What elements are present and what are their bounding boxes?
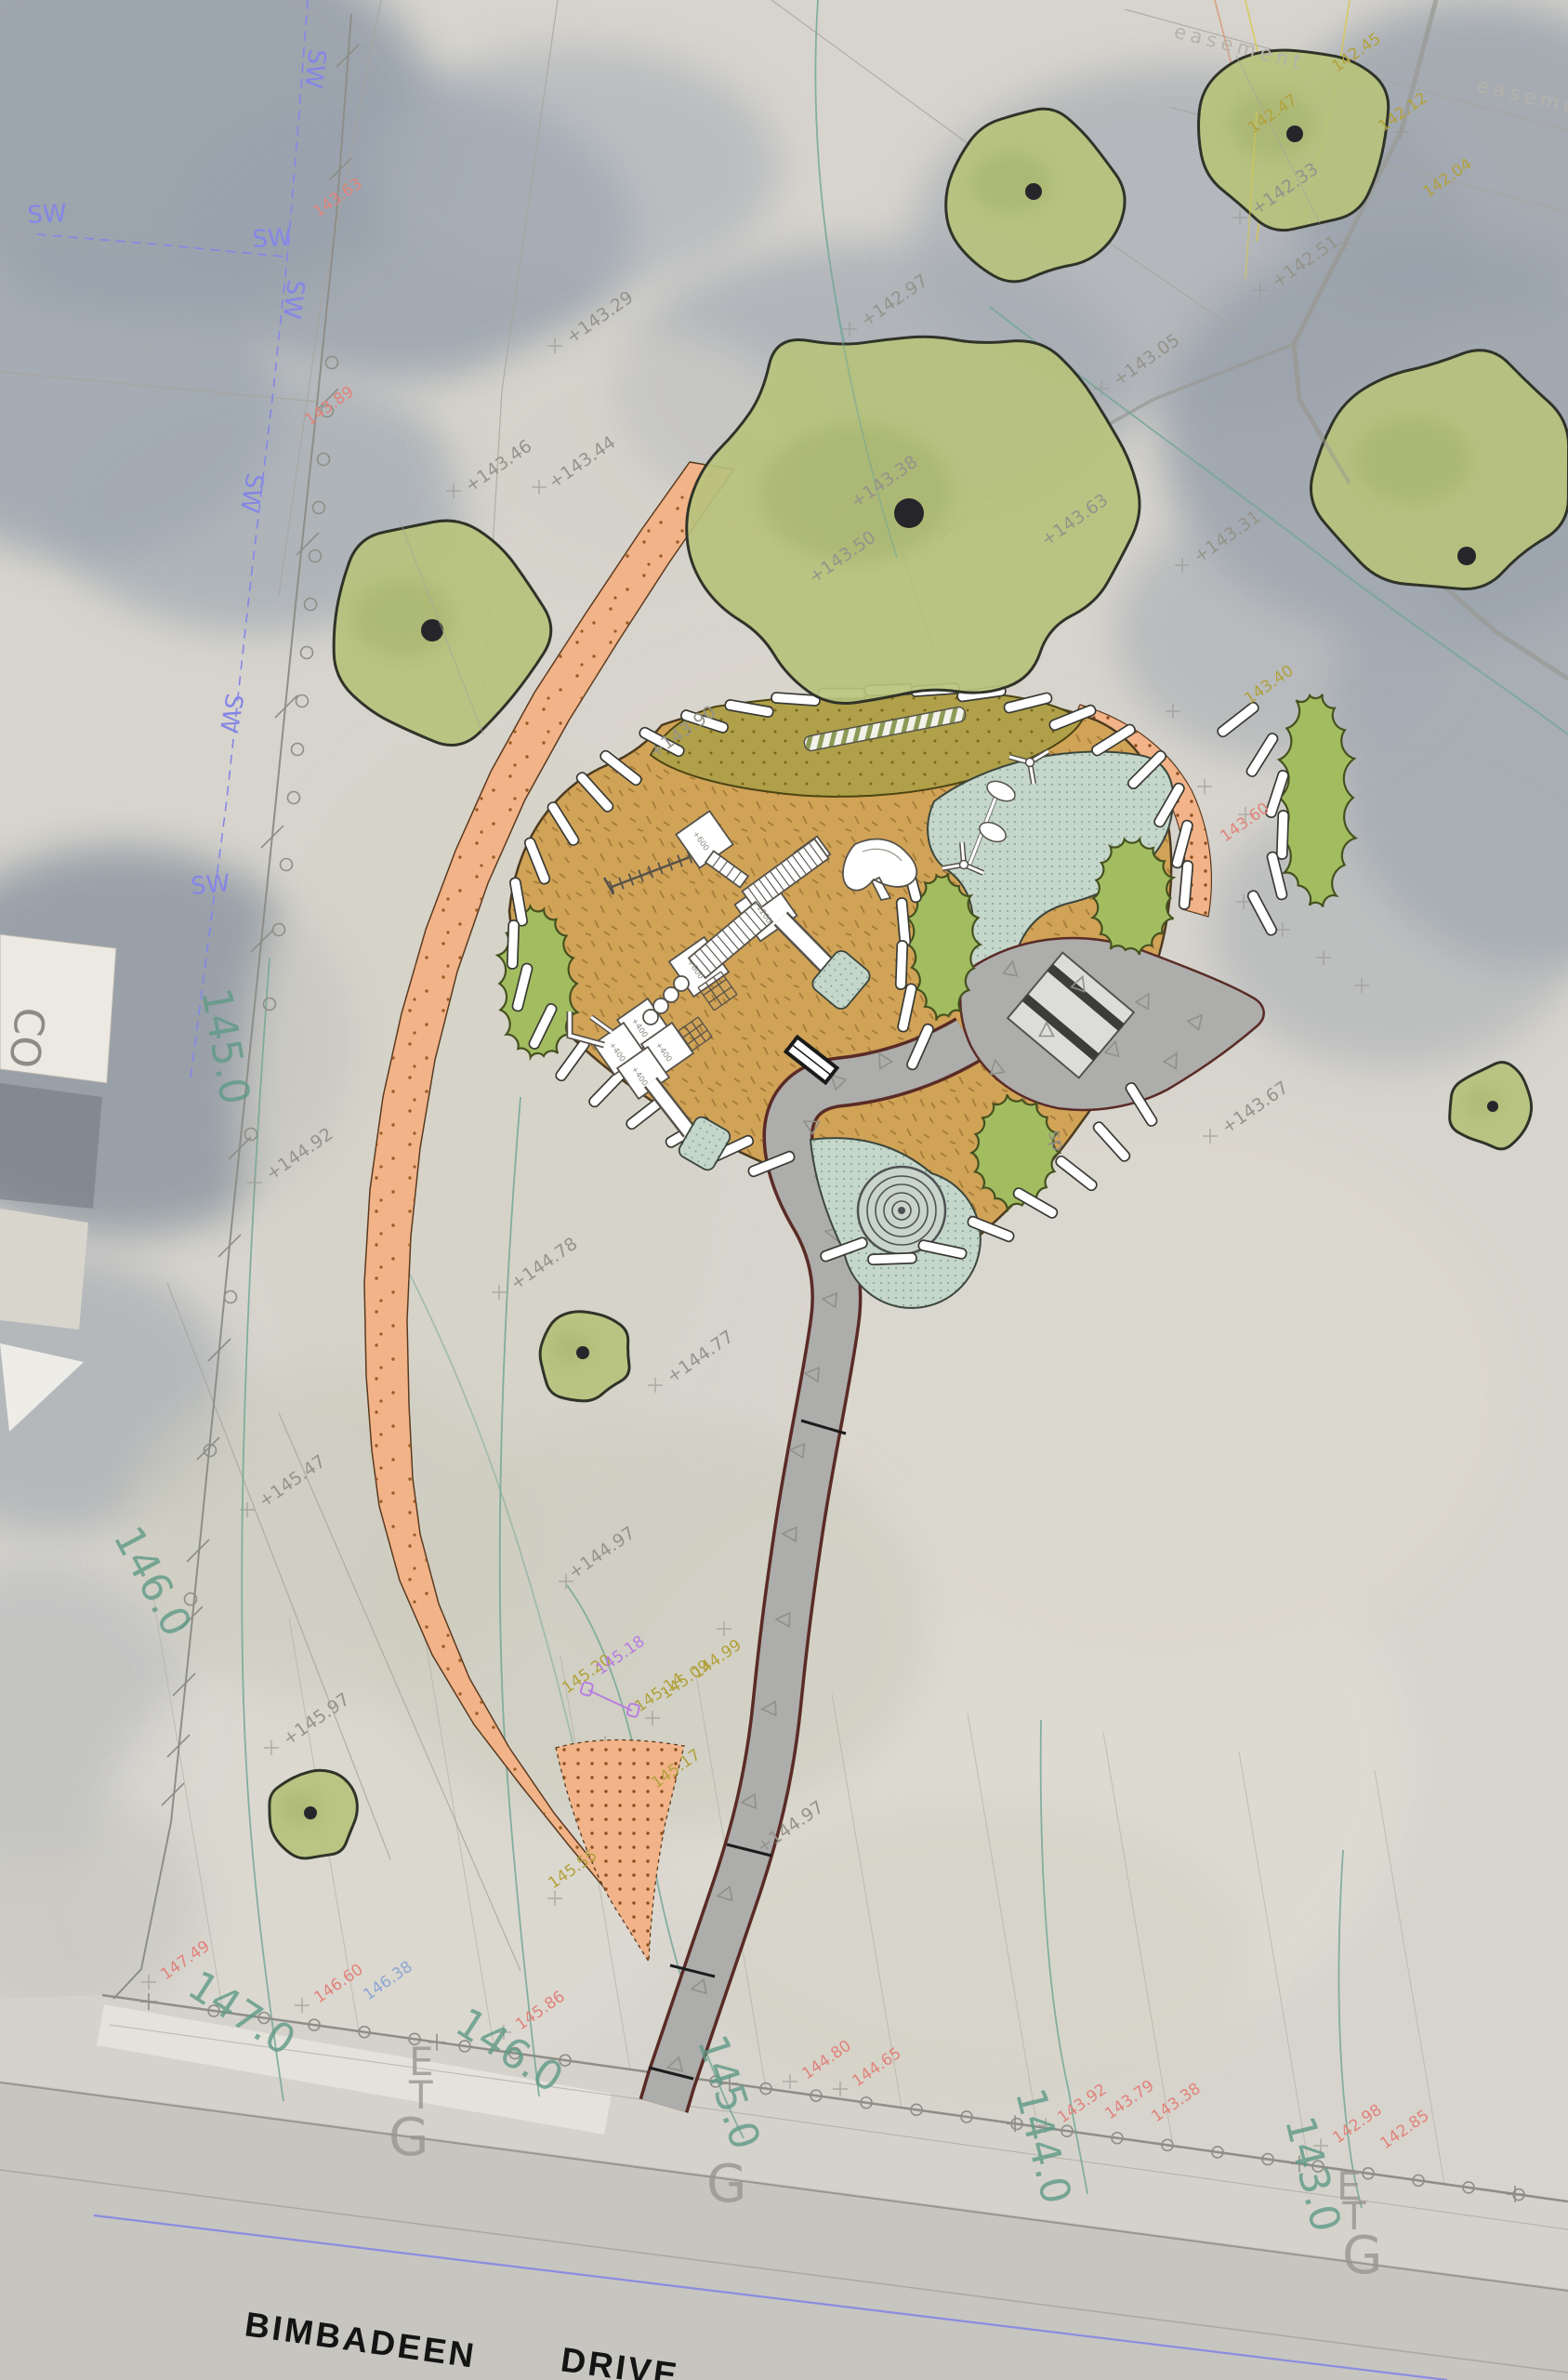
aerial-texture [1208,790,1568,1069]
tree-trunk-dot [1286,126,1303,142]
stormwater-label: SW [27,200,68,230]
aerial-texture [697,1804,1255,2101]
tree-trunk-dot [894,498,924,528]
utility-letter: G [706,2154,746,2215]
misc-label: CO [0,1005,54,1071]
aerial-texture [372,46,781,288]
tree-trunk-dot [1457,547,1476,565]
utility-letter: G [389,2108,428,2168]
timber-log [868,1253,916,1265]
timber-log [1277,811,1289,859]
timber-log [507,920,520,969]
landscape-site-plan: BIMBADEEN DRIVE SWSWSWSWSWSWSW147.0146.0… [0,0,1568,2380]
tree-canopy [270,1770,357,1858]
aerial-texture [121,1367,530,1701]
tree-trunk-dot [576,1346,589,1359]
site-plan-canvas: BIMBADEEN DRIVE SWSWSWSWSWSWSW147.0146.0… [0,0,1568,2380]
utility-letter: G [1342,2226,1382,2286]
tree-trunk-dot [1025,183,1042,200]
stormwater-label: SW [277,278,310,321]
tree-trunk-dot [304,1806,317,1819]
tree-trunk-dot [1487,1101,1498,1112]
timber-log [896,941,908,989]
stormwater-label: SW [298,47,331,90]
carousel-spinner [858,1167,945,1254]
stormwater-label: SW [252,224,293,254]
stormwater-label: SW [190,869,231,901]
